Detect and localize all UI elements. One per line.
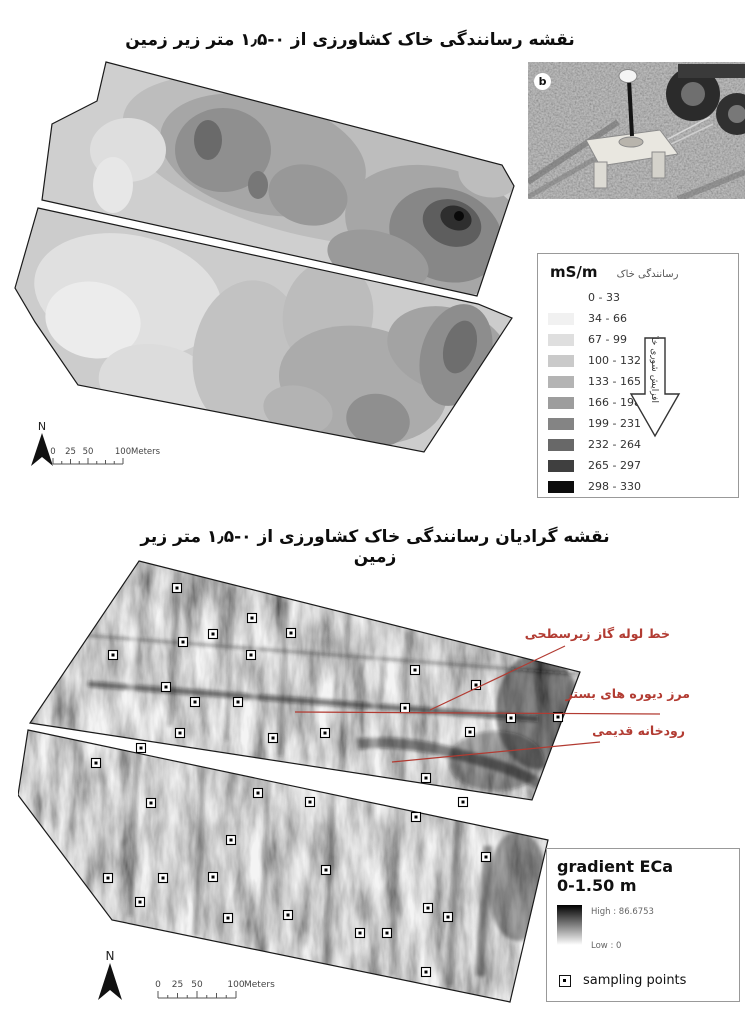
- legend-class-row: 100 - 132: [548, 350, 641, 371]
- sampling-point-dot: [257, 792, 260, 795]
- legend-header: mS/m رسانندگی خاک: [550, 262, 730, 281]
- annotation-old-river: رودخانه قدیمی: [592, 723, 685, 738]
- sampling-point-dot: [212, 876, 215, 879]
- sampling-point-dot: [162, 877, 165, 880]
- gradient-low-label: Low : 0: [591, 941, 621, 951]
- legend-swatch: [548, 418, 574, 430]
- scale-50: 50: [83, 447, 94, 457]
- legend-class-row: 265 - 297: [548, 455, 641, 476]
- sampling-point-dot: [404, 707, 407, 710]
- sampling-point-dot: [309, 801, 312, 804]
- sampling-point-dot: [165, 686, 168, 689]
- sampling-point-dot: [557, 716, 560, 719]
- legend-class-row: 67 - 99: [548, 329, 641, 350]
- legend-range-label: 298 - 330: [588, 480, 641, 493]
- sampling-point-dot: [176, 587, 179, 590]
- scale-100: 100: [227, 980, 244, 990]
- sampling-point-dot: [325, 869, 328, 872]
- sampling-point-dot: [140, 747, 143, 750]
- sampling-point-dot: [427, 907, 430, 910]
- gradient-high-label: High : 86.6753: [591, 907, 654, 917]
- top-conductivity-map: [8, 55, 538, 463]
- legend-class-row: 232 - 264: [548, 434, 641, 455]
- sampling-point-dot: [425, 971, 428, 974]
- sampling-point-dot: [237, 701, 240, 704]
- top-scalebar: N 0 25 50 100 Meters: [28, 416, 218, 474]
- sampling-points-label: sampling points: [583, 973, 686, 988]
- north-arrow-icon: [98, 963, 122, 1000]
- legend-swatch: [548, 292, 574, 304]
- legend-swatch: [548, 334, 574, 346]
- sampling-point-dot: [462, 801, 465, 804]
- legend-class-row: 133 - 165: [548, 371, 641, 392]
- sampling-point-dot: [290, 632, 293, 635]
- scale-100: 100: [115, 447, 131, 457]
- sampling-point-dot: [386, 932, 389, 935]
- annotation-bed-walls-boundary: مرز دیوره های بستر: [566, 686, 690, 701]
- legend-class-row: 199 - 231: [548, 413, 641, 434]
- gradient-eca-legend: gradient ECa 0-1.50 m High : 86.6753 Low…: [546, 848, 740, 1002]
- figure-page: نقشه رسانندگی خاک کشاورزی از ۰-۱٫۵ متر ز…: [0, 0, 752, 1024]
- sampling-point-dot: [182, 641, 185, 644]
- field-photo-image: [528, 62, 745, 199]
- sampling-point-dot: [415, 816, 418, 819]
- sampling-point-dot: [475, 684, 478, 687]
- sampling-point-dot: [425, 777, 428, 780]
- legend-swatch: [548, 313, 574, 325]
- annotation-gas-pipeline: خط لوله گاز زیرسطحی: [525, 626, 670, 641]
- gradient-legend-title: gradient ECa 0-1.50 m: [557, 857, 673, 895]
- top-map-title: نقشه رسانندگی خاک کشاورزی از ۰-۱٫۵ متر ز…: [100, 30, 600, 50]
- sampling-point-dot: [250, 654, 253, 657]
- sampling-point-dot: [150, 802, 153, 805]
- gradient-legend-title-line1: gradient ECa: [557, 857, 673, 876]
- scale-0: 0: [50, 447, 55, 457]
- scale-25: 25: [65, 447, 76, 457]
- legend-class-row: 34 - 66: [548, 308, 641, 329]
- scale-50: 50: [191, 980, 203, 990]
- legend-classes: 0 - 3334 - 6667 - 99100 - 132133 - 16516…: [548, 287, 641, 497]
- legend-class-row: 298 - 330: [548, 476, 641, 497]
- legend-heading-fa: رسانندگی خاک: [617, 269, 679, 280]
- sampling-point-dot: [324, 732, 327, 735]
- sampling-point-dot: [194, 701, 197, 704]
- salinity-arrow-label: افزایش شوری خاک: [649, 336, 660, 403]
- legend-range-label: 0 - 33: [588, 291, 620, 304]
- legend-swatch: [548, 439, 574, 451]
- north-label: N: [38, 420, 46, 433]
- sampling-point-dot: [230, 839, 233, 842]
- sampling-point-dot: [179, 732, 182, 735]
- conductivity-legend: mS/m رسانندگی خاک 0 - 3334 - 6667 - 9910…: [537, 253, 739, 498]
- sampling-point-dot: [469, 731, 472, 734]
- legend-range-label: 67 - 99: [588, 333, 627, 346]
- legend-swatch: [548, 397, 574, 409]
- sampling-point-icon: [559, 975, 571, 987]
- photo-label-badge: b: [534, 73, 551, 90]
- sampling-point-dot: [112, 654, 115, 657]
- sampling-point-dot: [251, 617, 254, 620]
- legend-swatch: [548, 460, 574, 472]
- scale-0: 0: [155, 980, 161, 990]
- sampling-point-dot: [485, 856, 488, 859]
- sampling-point-dot: [95, 762, 98, 765]
- sampling-point-dot: [227, 917, 230, 920]
- sampling-point-dot: [359, 932, 362, 935]
- sampling-point-dot: [272, 737, 275, 740]
- gradient-legend-title-line2: 0-1.50 m: [557, 876, 673, 895]
- sampling-point-dot: [510, 717, 513, 720]
- north-label: N: [106, 949, 115, 963]
- scale-25: 25: [172, 980, 183, 990]
- sampling-points-legend-row: sampling points: [559, 973, 686, 988]
- scale-unit: Meters: [244, 980, 275, 990]
- sampling-point-dot: [287, 914, 290, 917]
- sampling-point-dot: [414, 669, 417, 672]
- legend-swatch: [548, 355, 574, 367]
- legend-unit-label: mS/m: [550, 263, 598, 281]
- legend-swatch: [548, 481, 574, 493]
- legend-swatch: [548, 376, 574, 388]
- scale-unit: Meters: [131, 447, 161, 457]
- sampling-point-dot: [447, 916, 450, 919]
- bottom-scalebar: N 0 25 50 100 Meters: [74, 944, 284, 1008]
- field-photo: b: [528, 62, 745, 199]
- sampling-point-dot: [139, 901, 142, 904]
- gradient-ramp: [557, 905, 582, 945]
- sampling-point-dot: [107, 877, 110, 880]
- legend-range-label: 34 - 66: [588, 312, 627, 325]
- legend-class-row: 0 - 33: [548, 287, 641, 308]
- sampling-point-dot: [212, 633, 215, 636]
- legend-range-label: 265 - 297: [588, 459, 641, 472]
- legend-class-row: 166 - 198: [548, 392, 641, 413]
- salinity-increase-arrow: افزایش شوری خاک: [629, 336, 681, 440]
